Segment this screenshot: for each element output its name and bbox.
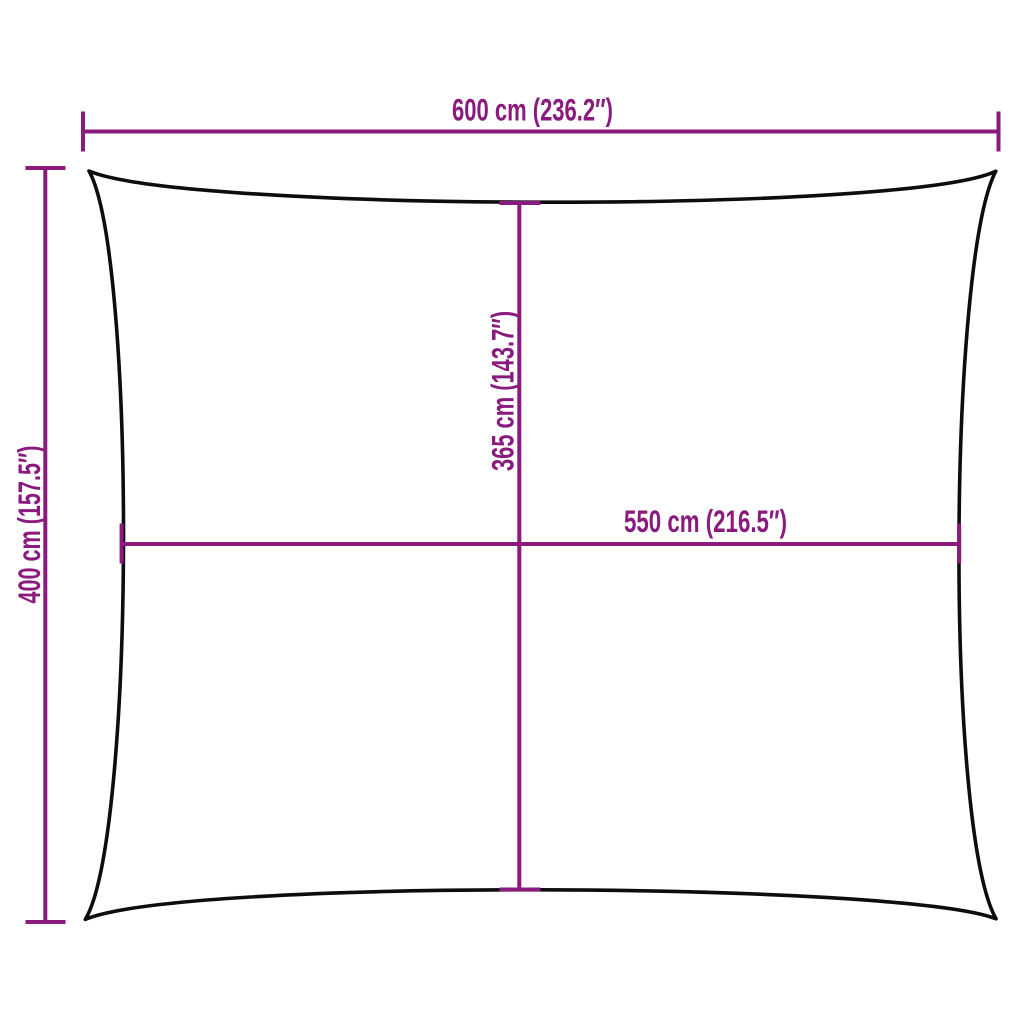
svg-text:600 cm (236.2″): 600 cm (236.2″) <box>452 92 613 128</box>
svg-text:400 cm (157.5″): 400 cm (157.5″) <box>11 446 47 604</box>
svg-text:550 cm (216.5″): 550 cm (216.5″) <box>624 503 787 539</box>
svg-text:365 cm (143.7″): 365 cm (143.7″) <box>485 311 521 471</box>
